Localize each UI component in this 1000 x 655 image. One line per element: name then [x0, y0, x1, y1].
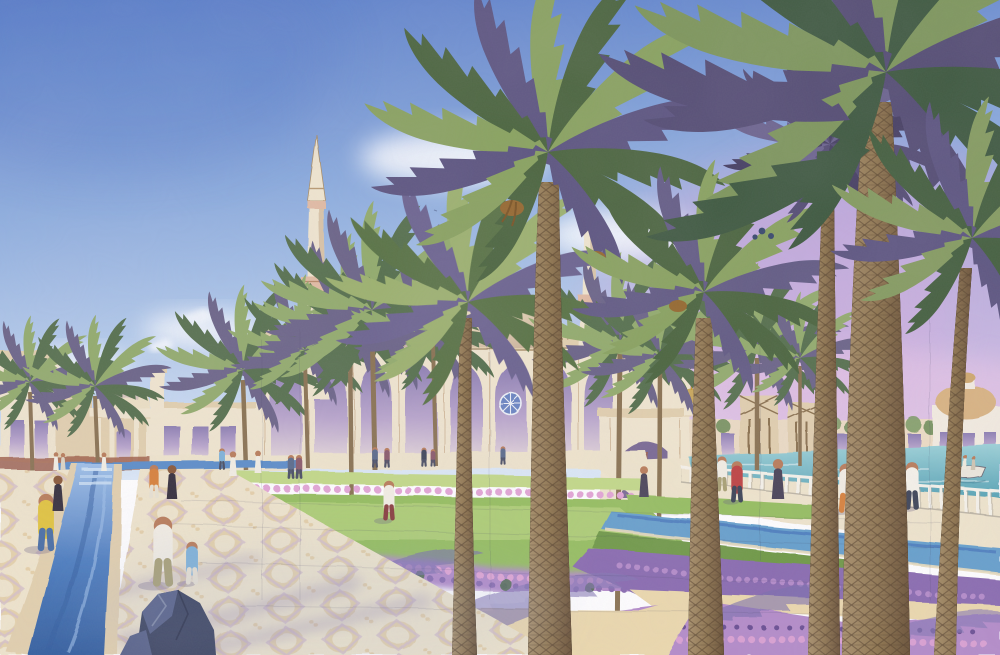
watercolor-rendering-stage: [0, 0, 1000, 655]
person-small: [53, 452, 59, 470]
gate-pylon: [150, 368, 164, 462]
date-cluster: [669, 300, 687, 312]
mosque-plaza-watercolor: [0, 0, 1000, 655]
person-abaya: [167, 465, 178, 499]
channel-cascade: [79, 468, 112, 485]
person-white-robe: [229, 451, 237, 476]
person-small: [60, 453, 65, 470]
rose-window: [500, 393, 522, 415]
person-dark-robe: [772, 459, 784, 499]
person-small: [255, 451, 262, 473]
person-abaya-2: [52, 476, 63, 511]
person-small: [101, 453, 107, 471]
person-in-gateway: [639, 466, 649, 497]
far-dome: [936, 385, 996, 419]
